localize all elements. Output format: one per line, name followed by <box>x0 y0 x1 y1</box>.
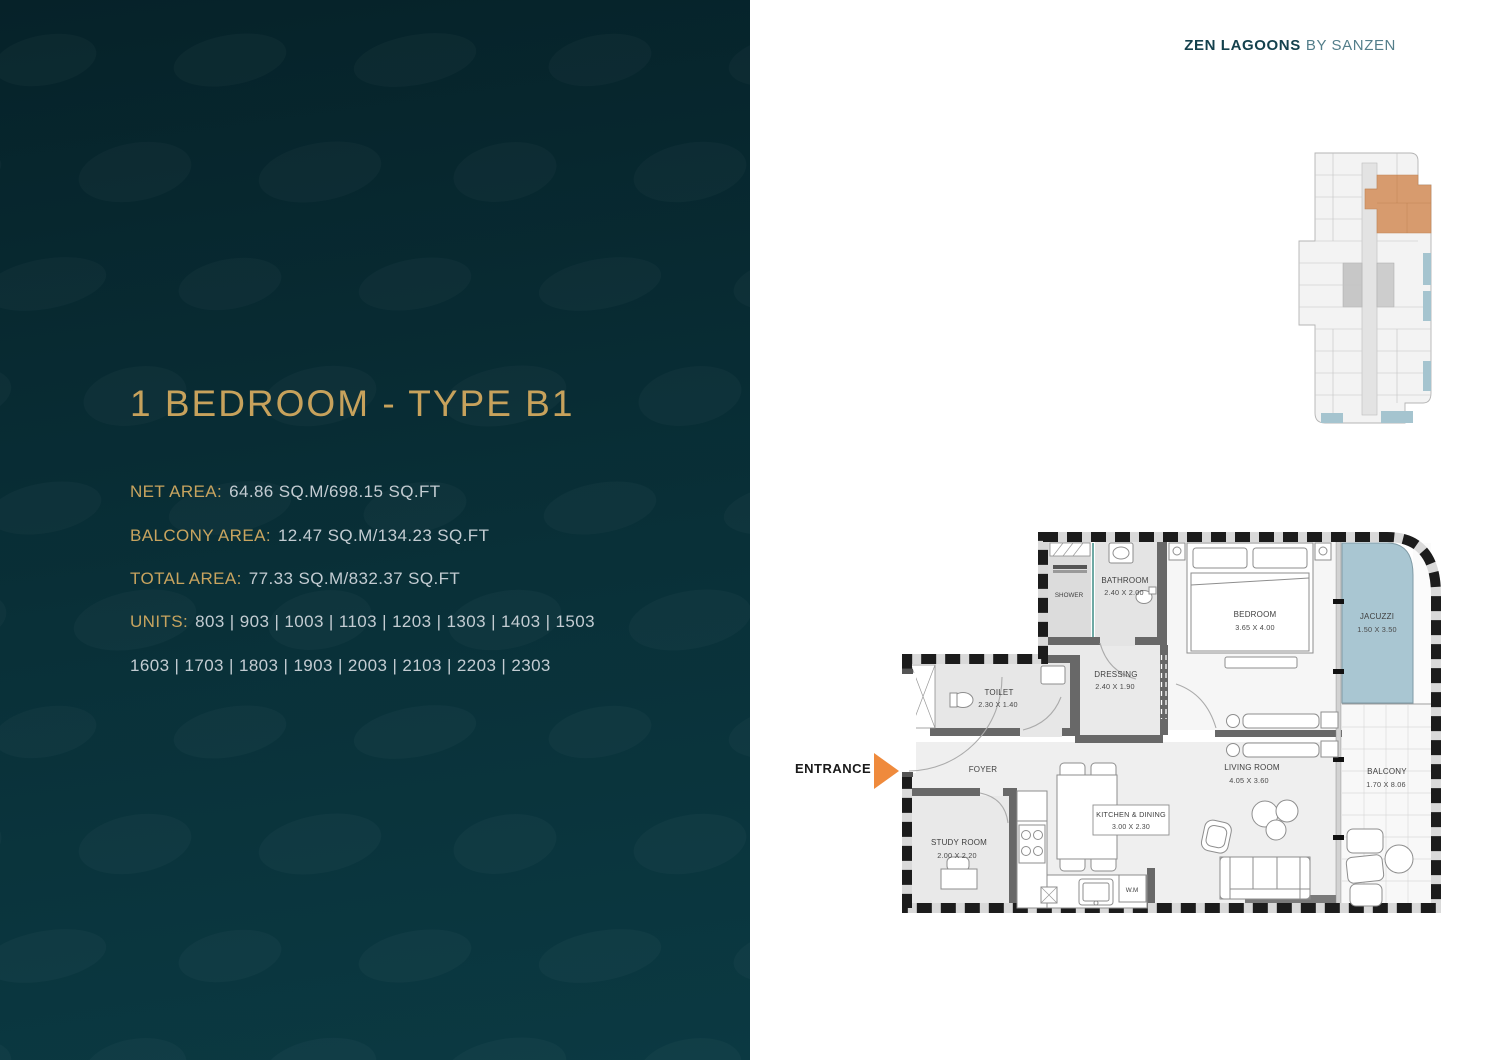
stat-value: 64.86 SQ.M/698.15 SQ.FT <box>229 482 440 501</box>
room-dims-dressing: 2.40 X 1.90 <box>1095 682 1135 691</box>
sofa <box>1220 857 1310 899</box>
room-dims-bathroom: 2.40 X 2.00 <box>1104 588 1144 597</box>
room-dims-balcony: 1.70 X 8.06 <box>1366 780 1406 789</box>
room-label-kitchen: KITCHEN & DINING <box>1096 810 1166 819</box>
stat-value: 77.33 SQ.M/832.37 SQ.FT <box>249 569 460 588</box>
room-dims-jacuzzi: 1.50 X 3.50 <box>1357 625 1397 634</box>
room-label-dressing: DRESSING <box>1094 670 1137 679</box>
room-label-study: STUDY ROOM <box>931 838 987 847</box>
keyplan-building-overview <box>1285 145 1460 435</box>
stat-label: TOTAL AREA: <box>130 569 242 588</box>
room-dims-toilet: 2.30 X 1.40 <box>978 700 1018 709</box>
room-dims-living: 4.05 X 3.60 <box>1229 776 1269 785</box>
room-label-foyer: FOYER <box>969 765 998 774</box>
room-label-balcony: BALCONY <box>1367 767 1407 776</box>
floorplan-drawing: SHOWER BATHROOM 2.40 X 2.00 TOILET 2.30 … <box>895 523 1460 918</box>
stat-net-area: NET AREA:64.86 SQ.M/698.15 SQ.FT <box>130 482 441 502</box>
stat-total-area: TOTAL AREA:77.33 SQ.M/832.37 SQ.FT <box>130 569 460 589</box>
brochure-page: 1 BEDROOM - TYPE B1 NET AREA:64.86 SQ.M/… <box>0 0 1496 1060</box>
bed <box>1187 543 1313 653</box>
stat-label: NET AREA: <box>130 482 222 501</box>
stat-units-line2: 1603 | 1703 | 1803 | 1903 | 2003 | 2103 … <box>130 656 551 676</box>
entrance-label: ENTRANCE <box>795 761 871 776</box>
room-dims-study: 2.00 X 2.20 <box>937 851 977 860</box>
room-label-bedroom: BEDROOM <box>1234 610 1277 619</box>
page-title: 1 BEDROOM - TYPE B1 <box>130 383 574 425</box>
stat-value: 12.47 SQ.M/134.23 SQ.FT <box>278 526 489 545</box>
brand-name: ZEN LAGOONS <box>1184 37 1301 54</box>
jacuzzi-pool <box>1342 543 1413 703</box>
stat-label: BALCONY AREA: <box>130 526 271 545</box>
room-label-wm: W.M <box>1126 887 1139 894</box>
room-label-jacuzzi: JACUZZI <box>1360 612 1394 621</box>
stat-balcony-area: BALCONY AREA:12.47 SQ.M/134.23 SQ.FT <box>130 526 489 546</box>
room-label-bathroom: BATHROOM <box>1101 576 1148 585</box>
brand-byline: BY SANZEN <box>1306 37 1396 54</box>
room-label-toilet: TOILET <box>984 688 1013 697</box>
stat-units: UNITS:803 | 903 | 1003 | 1103 | 1203 | 1… <box>130 612 595 632</box>
left-panel: 1 BEDROOM - TYPE B1 NET AREA:64.86 SQ.M/… <box>0 0 750 1060</box>
brand-header: ZEN LAGOONSBY SANZEN <box>1184 37 1396 54</box>
room-label-shower: SHOWER <box>1055 592 1084 599</box>
room-dims-kitchen: 3.00 X 2.30 <box>1112 824 1150 831</box>
entrance-arrow-icon <box>874 753 899 789</box>
stat-label: UNITS: <box>130 612 188 631</box>
room-label-living: LIVING ROOM <box>1224 763 1280 772</box>
stat-value: 803 | 903 | 1003 | 1103 | 1203 | 1303 | … <box>195 612 595 631</box>
room-dims-bedroom: 3.65 X 4.00 <box>1235 623 1275 632</box>
